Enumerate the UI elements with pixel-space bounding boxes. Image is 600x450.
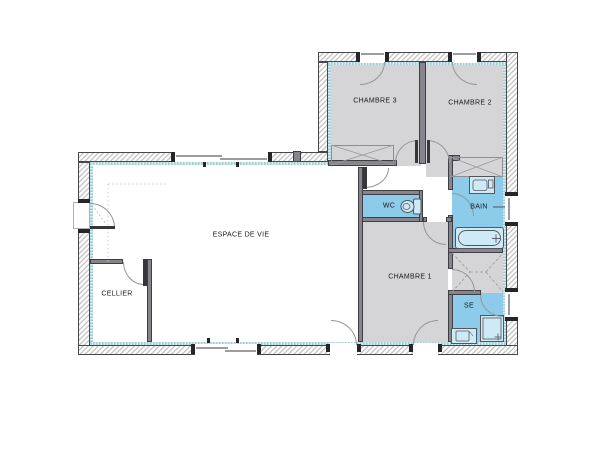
insulation-strip <box>90 165 93 342</box>
wall-cap <box>357 344 361 352</box>
wall-cap <box>356 52 360 62</box>
entrance-door-opening <box>73 202 90 229</box>
door-arc-wc-corridor <box>365 168 389 188</box>
window-living <box>175 152 268 162</box>
interior-wall-bain-south <box>448 248 503 253</box>
interior-wall-wc-south <box>358 217 423 222</box>
wall-cap <box>236 338 239 343</box>
window-pane <box>225 350 256 352</box>
door-leaf-chambre2 <box>427 140 430 163</box>
door-arc-living-south <box>331 320 357 345</box>
room-label-se: SE <box>464 303 474 310</box>
exterior-wall-left <box>78 162 90 355</box>
exterior-wall-wing-top <box>318 52 518 62</box>
wall-cap <box>236 162 239 167</box>
wall-cap <box>448 52 452 62</box>
wall-cap <box>505 317 518 321</box>
exterior-wall-wing-left <box>318 62 328 152</box>
door-leaf-cellier <box>143 260 147 286</box>
wall-cap <box>78 199 90 203</box>
window-pane <box>196 347 228 349</box>
structural-post <box>293 151 301 162</box>
interior-wall-wc-north <box>358 190 423 195</box>
room-label-chambre1: CHAMBRE 1 <box>388 274 432 281</box>
floor-plan: CHAMBRE 3 CHAMBRE 2 ESPACE DE VIE WC BAI… <box>0 0 600 450</box>
interior-wall-cellier-north <box>90 259 123 264</box>
insulation-strip <box>90 162 331 165</box>
wall-cap <box>207 338 210 343</box>
wall-cap <box>385 52 389 62</box>
wall-cap <box>171 152 175 162</box>
wall-cap <box>268 152 272 162</box>
wall-cap <box>78 229 90 233</box>
kitchen-dotted-lines <box>108 184 168 262</box>
room-label-wc: WC <box>383 203 395 210</box>
wall-cap <box>409 344 413 352</box>
wall-cap <box>191 344 195 354</box>
interior-wall-chambre1-west <box>358 167 363 342</box>
door-arc-entrance <box>90 203 115 228</box>
interior-wall-cellier-east <box>147 259 152 342</box>
wall-cap <box>438 344 442 352</box>
wall-cap <box>505 222 518 226</box>
window-pane <box>508 198 510 220</box>
closet-chambre3 <box>331 145 394 165</box>
room-label-chambre3: CHAMBRE 3 <box>353 98 397 105</box>
interior-wall-hall-stub <box>446 217 452 222</box>
exterior-wall-bottom <box>78 345 518 355</box>
wall-cap <box>477 52 481 62</box>
window-pane <box>176 155 222 157</box>
room-label-chambre2: CHAMBRE 2 <box>448 100 492 107</box>
interior-wall-se-west <box>448 293 453 342</box>
window-pane <box>453 53 476 55</box>
insulation-strip <box>90 342 506 345</box>
wall-cap <box>326 344 330 352</box>
window-pane <box>508 294 510 315</box>
room-label-bain: BAIN <box>470 204 488 211</box>
door-leaf-chambre3 <box>415 140 418 163</box>
interior-wall-divider-ch3-ch2 <box>419 62 426 164</box>
wall-cap <box>257 344 261 354</box>
closet-chambre2 <box>450 157 503 177</box>
wall-cap <box>505 192 518 196</box>
wall-cap <box>505 288 518 292</box>
window-pane <box>361 53 384 55</box>
room-label-espace-de-vie: ESPACE DE VIE <box>213 232 270 239</box>
door-leaf-wc-corridor <box>363 167 367 189</box>
room-label-cellier: CELLIER <box>101 291 132 298</box>
wall-cap <box>203 162 206 167</box>
window-pane <box>220 158 267 160</box>
door-leaf-entrance <box>90 226 115 229</box>
interior-wall-bain-west-lower <box>448 215 453 269</box>
door-arc-cellier <box>123 262 144 285</box>
